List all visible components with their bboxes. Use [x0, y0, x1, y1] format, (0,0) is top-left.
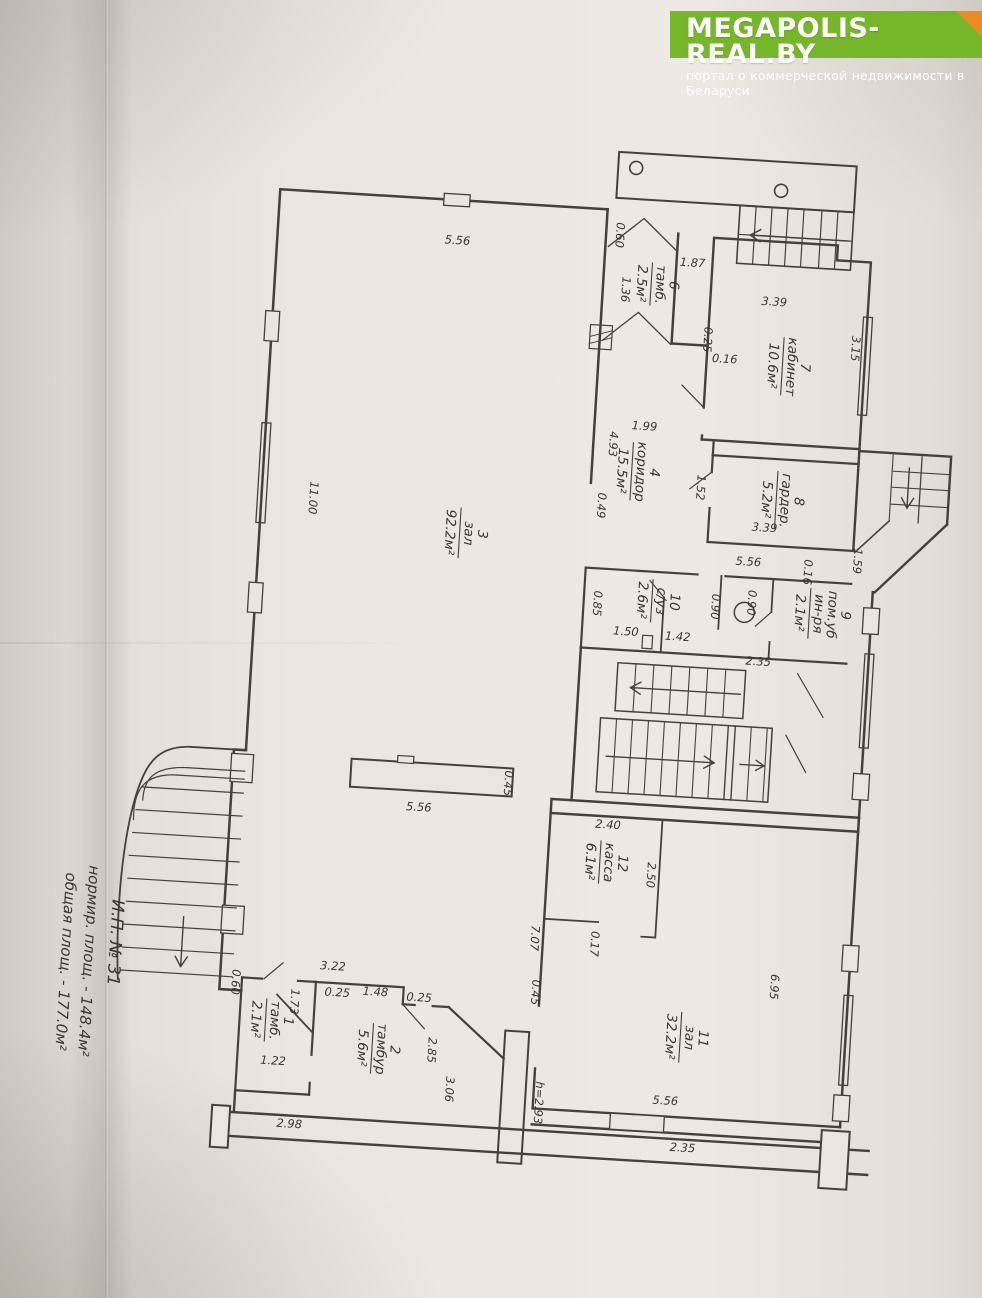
dimension-label: 2.98 — [276, 1116, 302, 1132]
megapolis-banner: MEGAPOLIS-REAL.BY портал о коммерческой … — [670, 11, 982, 58]
room-name: тамб. — [651, 265, 669, 305]
door-leaf — [681, 385, 705, 407]
annotation-total-area: общая площ. - 177.0м² — [51, 872, 80, 1051]
dimension-label: 0.25 — [700, 326, 716, 352]
door-leaf — [401, 1004, 425, 1028]
dimension-label: 0.60 — [612, 222, 628, 248]
dimension-label: 2.35 — [745, 654, 771, 670]
room-name: гардер. — [776, 473, 795, 528]
dimension-label: 3.06 — [442, 1076, 458, 1102]
dimension-label: 2.85 — [424, 1037, 440, 1063]
pilaster — [444, 193, 471, 207]
main-staircase — [596, 662, 826, 805]
dimension-label: 5.56 — [444, 232, 470, 248]
room-label: 2тамбур5.6м² — [352, 1022, 404, 1076]
dimension-label: 0.16 — [800, 559, 816, 585]
dimension-label: 3.22 — [320, 958, 346, 974]
room-name: тамбур — [371, 1023, 390, 1075]
cash-hall-walls — [532, 813, 858, 1143]
room-area: 2.6м² — [633, 581, 651, 620]
dimension-label: 0.16 — [712, 351, 738, 367]
partition-wall — [350, 753, 514, 797]
dimension-label: 1.48 — [362, 984, 388, 1000]
bay-stairs — [889, 455, 951, 524]
porch-column-icon — [774, 184, 788, 198]
room-name: зал — [460, 521, 477, 546]
double-door-leaves — [603, 310, 673, 344]
dimension-label: 2.35 — [669, 1140, 695, 1156]
dimension-label: 0.25 — [406, 989, 432, 1005]
banner-subtitle: портал о коммерческой недвижимости в Бел… — [686, 68, 968, 98]
room-label: 7кабинет10.6м² — [763, 336, 815, 399]
room-name: касса — [600, 842, 618, 882]
room-label: 9пом.убин-ря2.1м² — [790, 588, 855, 641]
stairs-direction-arrow — [175, 916, 190, 967]
dimension-label: 1.87 — [679, 255, 706, 271]
scanned-floor-plan-photo: 1тамб.2.1м²2тамбур5.6м²3зал92.2м²4коридо… — [0, 0, 982, 1298]
room-area: 2.1м² — [790, 594, 808, 633]
dimension-label: 1.22 — [260, 1053, 286, 1069]
room-area: 2.5м² — [632, 264, 650, 303]
pilaster — [832, 1095, 850, 1122]
column-h293 — [497, 1031, 529, 1164]
dimension-label: 3.39 — [751, 520, 777, 536]
dimension-label: 2.40 — [595, 817, 621, 833]
floor-plan-drawing: 1тамб.2.1м²2тамбур5.6м²3зал92.2м²4коридо… — [0, 0, 982, 1298]
dimension-label: 6.95 — [767, 974, 783, 1000]
room-label: 11зал32.2м² — [661, 1011, 712, 1063]
porch-column-icon — [629, 161, 643, 175]
dimension-label: 1.42 — [664, 629, 690, 645]
room-area: 6.1м² — [581, 842, 599, 881]
dimension-label: 7.07 — [527, 925, 543, 952]
pilaster — [852, 773, 870, 800]
pilaster — [862, 608, 880, 635]
dimension-label: 0.85 — [590, 590, 606, 616]
dimension-label: 1.52 — [693, 474, 709, 500]
dimension-label: 0.49 — [594, 492, 610, 518]
room-area: 2.1м² — [246, 1000, 264, 1039]
floor-plan-group: 1тамб.2.1м²2тамбур5.6м²3зал92.2м²4коридо… — [46, 121, 969, 1194]
room-label: 10с/уз2.6м² — [633, 579, 684, 624]
dimension-label: 0.90 — [708, 593, 724, 619]
stairs-direction-arrow — [740, 759, 765, 770]
pilaster — [842, 945, 860, 972]
dimension-label: 11.00 — [305, 481, 321, 515]
stair-rail — [724, 726, 736, 800]
room-name: коридор — [631, 441, 651, 502]
room-name: тамб. — [265, 1001, 283, 1041]
room-name: зал — [680, 1025, 697, 1050]
dimension-label: 1.99 — [631, 418, 657, 434]
dimension-label: 0.45 — [528, 979, 544, 1005]
room-name: кабинет — [782, 337, 802, 398]
entrance-porch — [616, 152, 856, 212]
annotation-plan-number: И.П. № 31 — [102, 899, 127, 986]
room-label: 3зал92.2м² — [440, 507, 491, 559]
room-name: ин-ря — [809, 594, 827, 634]
door-leaf — [784, 673, 826, 773]
room-area: 5.6м² — [353, 1029, 371, 1068]
dimension-label: 1.73 — [287, 988, 303, 1014]
dimension-label: 5.56 — [406, 799, 432, 815]
dimension-label: 0.45 — [501, 770, 517, 796]
room-area: 5.2м² — [757, 481, 775, 520]
dimension-label: 0.17 — [587, 931, 603, 958]
dimension-label: 2.50 — [643, 862, 659, 888]
dimension-label: 1.50 — [613, 623, 639, 639]
plan-labels: 1тамб.2.1м²2тамбур5.6м²3зал92.2м²4коридо… — [220, 201, 884, 1163]
side-bay — [851, 451, 951, 596]
sink-icon — [642, 635, 653, 649]
banner-title: MEGAPOLIS-REAL.BY — [686, 16, 968, 68]
pilaster — [609, 1113, 664, 1132]
dimension-label: 0.25 — [324, 984, 350, 1000]
dimension-label: 3.39 — [761, 294, 787, 310]
dimension-label: h=2.93 — [531, 1081, 548, 1124]
room-area: 92.2м² — [440, 509, 459, 556]
dimension-label: 1.59 — [850, 548, 866, 574]
room-name: с/уз — [652, 587, 670, 615]
room-label: 12касса6.1м² — [581, 840, 632, 885]
dimension-label: 0.90 — [744, 590, 760, 616]
dimension-label: 5.56 — [735, 554, 761, 570]
dimension-label: 0.60 — [228, 969, 244, 995]
pilaster — [247, 582, 263, 613]
dimension-label: 1.36 — [618, 276, 634, 302]
room-area: 32.2м² — [661, 1013, 680, 1060]
stairs-direction-arrow — [606, 750, 715, 769]
plan-annotation: И.П. № 31 нормир. площ. - 148.4м² общая … — [51, 864, 130, 1059]
door-leaf — [264, 962, 283, 980]
dimension-label: 5.56 — [652, 1093, 678, 1109]
dimension-label: 3.15 — [848, 335, 864, 361]
dimension-label: 4.93 — [606, 431, 622, 457]
pilaster — [264, 311, 280, 342]
room-area: 10.6м² — [763, 342, 782, 389]
